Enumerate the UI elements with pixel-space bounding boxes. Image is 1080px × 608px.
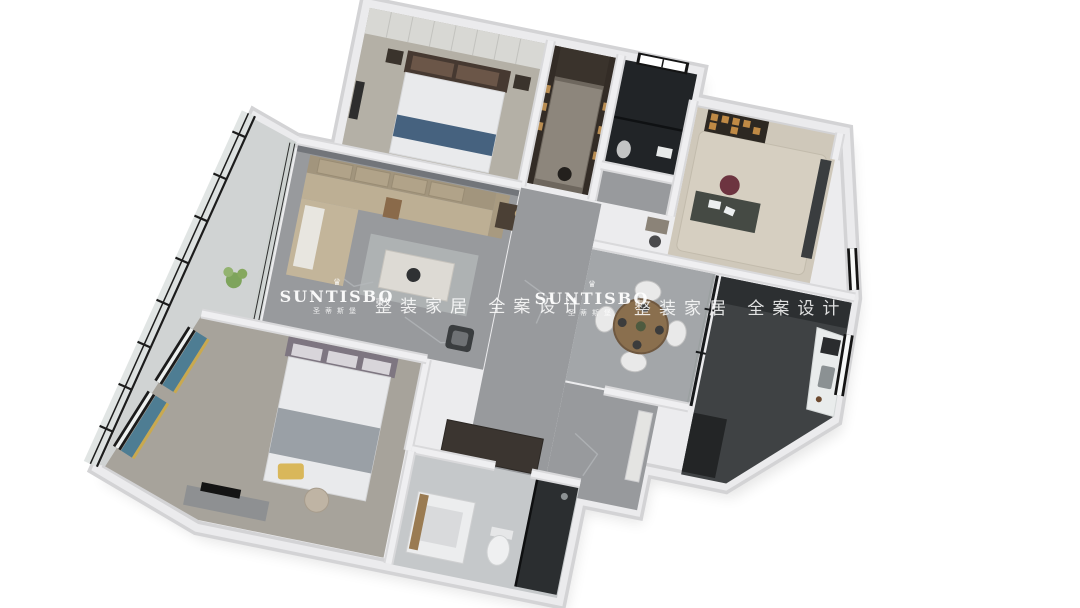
vanity [406, 491, 475, 563]
tagline-watermark: 整装家居 全案设计 [634, 294, 847, 319]
bed [387, 50, 511, 173]
yellow-pillow [278, 463, 304, 479]
crown-icon: ♛ [532, 281, 652, 290]
crown-icon: ♛ [277, 279, 397, 288]
apartment-3d-floorplan-screenshot: ♛ SUNTISBO 圣蒂斯堡 整装家居 全案设计 ♛ SUNTISBO 圣蒂斯… [0, 0, 1080, 608]
study [667, 107, 839, 285]
lounge-chair [445, 324, 475, 353]
